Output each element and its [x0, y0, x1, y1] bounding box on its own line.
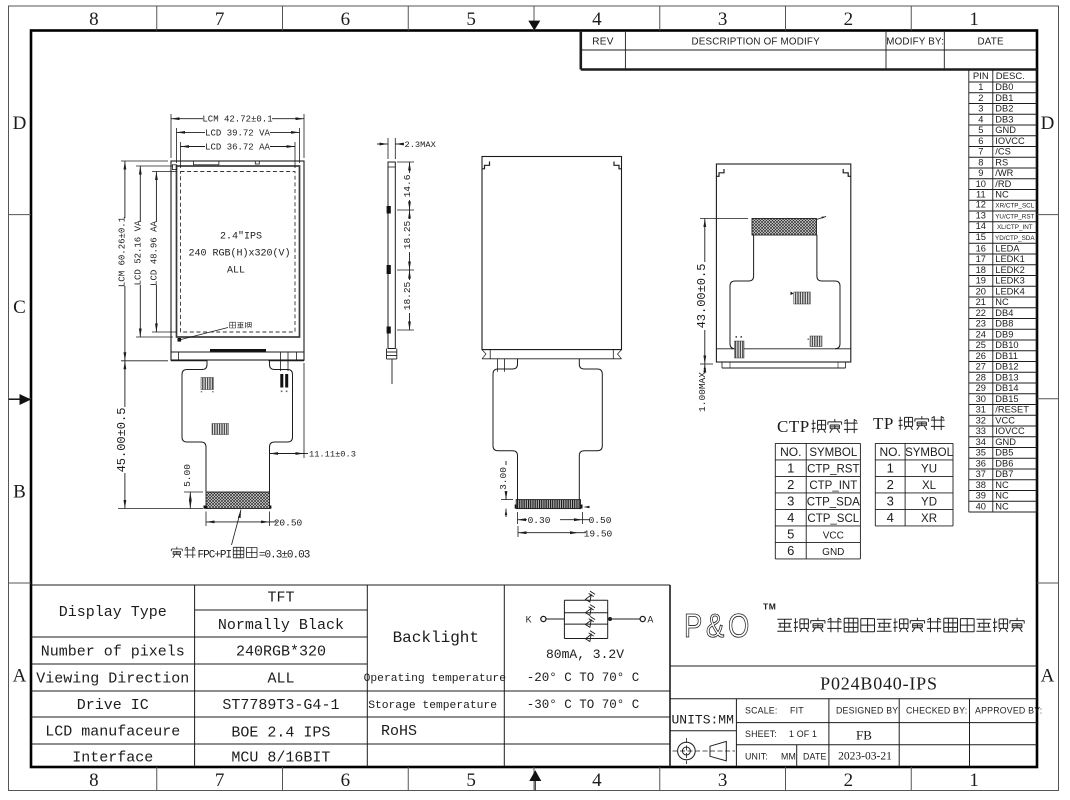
svg-text:1: 1 — [969, 9, 979, 30]
svg-text:GND: GND — [995, 437, 1016, 447]
svg-text:DB13: DB13 — [995, 372, 1018, 382]
svg-text:37: 37 — [976, 469, 986, 479]
svg-text:3.00: 3.00 — [498, 467, 509, 490]
svg-text:1: 1 — [887, 460, 894, 475]
svg-text:SYMBOL: SYMBOL — [809, 447, 858, 459]
svg-text:LCM 60.26±0.1: LCM 60.26±0.1 — [118, 217, 128, 287]
svg-text:DB6: DB6 — [995, 458, 1013, 468]
svg-text:240RGB*320: 240RGB*320 — [236, 644, 326, 661]
svg-text:A: A — [1041, 665, 1055, 686]
svg-text:5: 5 — [787, 526, 794, 541]
svg-text:RS: RS — [995, 157, 1008, 167]
svg-text:4: 4 — [887, 510, 894, 525]
svg-text:LCD 48.96 AA: LCD 48.96 AA — [149, 220, 159, 285]
svg-text:CTP_SDA: CTP_SDA — [807, 496, 860, 508]
svg-text:DB14: DB14 — [995, 383, 1018, 393]
svg-text:26: 26 — [976, 351, 986, 361]
svg-text:32: 32 — [976, 415, 986, 425]
svg-text:XR: XR — [921, 513, 937, 525]
svg-text:28: 28 — [976, 372, 986, 382]
svg-text:23: 23 — [976, 319, 986, 329]
svg-text:CTP_INT: CTP_INT — [809, 480, 857, 492]
svg-text:1: 1 — [969, 770, 979, 791]
svg-text:MODIFY BY:: MODIFY BY: — [886, 37, 944, 48]
svg-text:LEDK2: LEDK2 — [995, 265, 1024, 275]
svg-text:240 RGB(H)x320(V): 240 RGB(H)x320(V) — [188, 248, 290, 260]
svg-text:ALL: ALL — [227, 266, 245, 277]
svg-text:D: D — [13, 113, 27, 134]
svg-text:2: 2 — [844, 9, 854, 30]
svg-text:SHEET:: SHEET: — [745, 729, 777, 739]
svg-text:5: 5 — [978, 125, 983, 135]
svg-text:17: 17 — [976, 254, 986, 264]
svg-text:16: 16 — [976, 243, 986, 253]
svg-text:DB7: DB7 — [995, 469, 1013, 479]
svg-text:P&O: P&O — [684, 609, 753, 645]
svg-text:XL/CTP_INT: XL/CTP_INT — [997, 224, 1033, 231]
svg-text:9: 9 — [978, 168, 983, 178]
svg-text:45.00±0.5: 45.00±0.5 — [115, 408, 129, 473]
svg-text:DB15: DB15 — [995, 394, 1018, 404]
svg-text:MCU 8/16BIT: MCU 8/16BIT — [231, 750, 330, 767]
svg-text:A: A — [647, 615, 653, 625]
svg-text:PIN: PIN — [973, 71, 989, 82]
svg-text:APPROVED BY:: APPROVED BY: — [975, 706, 1042, 716]
svg-text:LEDK1: LEDK1 — [995, 254, 1024, 264]
svg-text:A: A — [13, 665, 27, 686]
svg-text:DESC.: DESC. — [996, 71, 1025, 82]
svg-text:DESIGNED BY:: DESIGNED BY: — [836, 706, 901, 716]
svg-text:7: 7 — [215, 9, 225, 30]
svg-text:2: 2 — [844, 770, 854, 791]
svg-text:YU: YU — [921, 463, 937, 475]
svg-text:3: 3 — [718, 770, 728, 791]
svg-text:0.50: 0.50 — [589, 515, 612, 526]
svg-text:/WR: /WR — [995, 168, 1013, 178]
svg-text:5: 5 — [466, 770, 476, 791]
svg-text:1: 1 — [978, 82, 983, 92]
svg-text:25: 25 — [976, 340, 986, 350]
svg-text:IOVCC: IOVCC — [995, 136, 1025, 146]
svg-text:40: 40 — [976, 501, 986, 511]
svg-text:DB5: DB5 — [995, 448, 1013, 458]
svg-text:LEDK3: LEDK3 — [995, 276, 1024, 286]
svg-text:4: 4 — [592, 9, 602, 30]
svg-text:NO.: NO. — [780, 445, 801, 459]
svg-text:RoHS: RoHS — [381, 723, 417, 740]
svg-text:GND: GND — [822, 547, 844, 558]
svg-text:TM: TM — [763, 602, 776, 612]
svg-text:19.50: 19.50 — [584, 528, 613, 539]
svg-text:NO.: NO. — [880, 445, 901, 459]
svg-text:4: 4 — [592, 770, 602, 791]
svg-text:IOVCC: IOVCC — [995, 426, 1025, 436]
svg-text:DESCRIPTION OF MODIFY: DESCRIPTION OF MODIFY — [692, 37, 821, 48]
svg-text:22: 22 — [976, 308, 986, 318]
svg-text:14: 14 — [976, 221, 986, 231]
svg-text:6: 6 — [341, 9, 351, 30]
svg-text:8: 8 — [89, 770, 99, 791]
svg-text:SCALE:: SCALE: — [745, 706, 778, 716]
svg-text:3: 3 — [887, 493, 894, 508]
svg-text:34: 34 — [976, 437, 986, 447]
svg-text:NC: NC — [995, 190, 1009, 200]
svg-text:YD/CTP_SDA: YD/CTP_SDA — [995, 235, 1035, 242]
svg-text:5.00: 5.00 — [182, 464, 193, 487]
svg-text:Number of pixels: Number of pixels — [41, 644, 185, 661]
svg-text:D: D — [1041, 113, 1055, 134]
svg-text:DB10: DB10 — [995, 340, 1018, 350]
svg-text:3: 3 — [787, 493, 794, 508]
svg-text:20: 20 — [976, 286, 986, 296]
svg-text:NC: NC — [995, 480, 1009, 490]
svg-text:19: 19 — [976, 276, 986, 286]
svg-text:Display Type: Display Type — [59, 604, 167, 621]
svg-text:DB12: DB12 — [995, 362, 1018, 372]
svg-text:6: 6 — [978, 136, 983, 146]
svg-text:CTP: CTP — [777, 417, 810, 436]
svg-text:DB4: DB4 — [995, 308, 1013, 318]
svg-text:YU/CTP_RST: YU/CTP_RST — [995, 213, 1034, 220]
svg-text:TP: TP — [873, 414, 894, 433]
svg-text:XR/CTP_SCL: XR/CTP_SCL — [995, 203, 1034, 210]
svg-text:18.25: 18.25 — [402, 281, 413, 310]
svg-text:DB0: DB0 — [995, 82, 1013, 92]
svg-text:/RESET: /RESET — [995, 405, 1029, 415]
svg-text:2023-03-21: 2023-03-21 — [838, 751, 892, 763]
svg-text:14.6: 14.6 — [402, 174, 413, 197]
svg-text:Drive IC: Drive IC — [77, 697, 149, 714]
svg-text:5: 5 — [466, 9, 476, 30]
svg-text:36: 36 — [976, 458, 986, 468]
svg-text:29: 29 — [976, 383, 986, 393]
svg-text:18: 18 — [976, 265, 986, 275]
svg-text:ALL: ALL — [267, 671, 294, 688]
svg-text:DB8: DB8 — [995, 319, 1013, 329]
svg-text:80mA, 3.2V: 80mA, 3.2V — [546, 647, 624, 662]
svg-text:LCD 52.16 VA: LCD 52.16 VA — [133, 220, 143, 285]
svg-text:NC: NC — [995, 297, 1009, 307]
svg-text:LCD manufaceure: LCD manufaceure — [45, 724, 180, 741]
svg-text:3: 3 — [718, 9, 728, 30]
svg-text:NC: NC — [995, 501, 1009, 511]
svg-text:0.30: 0.30 — [528, 515, 551, 526]
svg-text:C: C — [13, 297, 26, 318]
svg-text:2.4"IPS: 2.4"IPS — [220, 231, 262, 243]
svg-text:CHECKED BY:: CHECKED BY: — [906, 706, 967, 716]
svg-text:6: 6 — [341, 770, 351, 791]
svg-text:11: 11 — [976, 190, 986, 200]
svg-text:ST7789T3-G4-1: ST7789T3-G4-1 — [222, 697, 339, 714]
svg-text:3: 3 — [978, 104, 983, 114]
svg-text:UNITS:MM: UNITS:MM — [672, 713, 734, 728]
svg-text:LCM 42.72±0.1: LCM 42.72±0.1 — [202, 115, 272, 125]
svg-text:10: 10 — [976, 179, 986, 189]
svg-text:4: 4 — [787, 510, 794, 525]
svg-text:20.50: 20.50 — [274, 517, 303, 528]
svg-text:31: 31 — [976, 405, 986, 415]
svg-text:MM: MM — [781, 752, 796, 762]
svg-text:4: 4 — [978, 114, 983, 124]
svg-text:2: 2 — [787, 477, 794, 492]
svg-text:7: 7 — [215, 770, 225, 791]
svg-text:Storage temperature: Storage temperature — [368, 700, 497, 712]
svg-text:35: 35 — [976, 448, 986, 458]
svg-text:DB3: DB3 — [995, 114, 1013, 124]
svg-text:DATE: DATE — [803, 752, 827, 762]
svg-text:FB: FB — [856, 728, 872, 743]
svg-text:38: 38 — [976, 480, 986, 490]
svg-text:7: 7 — [978, 147, 983, 157]
svg-text:P024B040-IPS: P024B040-IPS — [820, 674, 938, 694]
svg-text:39: 39 — [976, 491, 986, 501]
svg-text:Interface: Interface — [72, 750, 153, 767]
svg-text:TFT: TFT — [267, 590, 294, 607]
svg-text:24: 24 — [976, 329, 986, 339]
svg-text:LCD 39.72 VA: LCD 39.72 VA — [205, 128, 270, 138]
svg-text:Viewing Direction: Viewing Direction — [36, 671, 189, 688]
svg-text:GND: GND — [995, 125, 1016, 135]
svg-text:-20° C TO 70° C: -20° C TO 70° C — [527, 671, 640, 685]
svg-text:-30° C TO 70° C: -30° C TO 70° C — [527, 698, 640, 712]
svg-text:13: 13 — [976, 210, 986, 220]
svg-text:/CS: /CS — [995, 147, 1011, 157]
svg-text:11.11±0.3: 11.11±0.3 — [309, 450, 356, 460]
svg-text:VCC: VCC — [823, 530, 844, 541]
svg-text:12: 12 — [976, 200, 986, 210]
svg-text:LCD 36.72 AA: LCD 36.72 AA — [205, 143, 270, 153]
svg-text:LEDK4: LEDK4 — [995, 286, 1024, 296]
svg-text:2.3MAX: 2.3MAX — [405, 140, 437, 150]
svg-text:8: 8 — [978, 157, 983, 167]
svg-text:XL: XL — [922, 480, 937, 492]
svg-text:NC: NC — [995, 491, 1009, 501]
svg-text:8: 8 — [89, 9, 99, 30]
svg-text:1: 1 — [787, 460, 794, 475]
svg-text:SYMBOL: SYMBOL — [905, 447, 954, 459]
svg-text:1.00MAX: 1.00MAX — [697, 372, 708, 412]
svg-text:CTP_SCL: CTP_SCL — [807, 513, 859, 525]
svg-text:30: 30 — [976, 394, 986, 404]
svg-text:21: 21 — [976, 297, 986, 307]
svg-text:2: 2 — [978, 93, 983, 103]
svg-text:6: 6 — [787, 543, 794, 558]
svg-text:Operating temperature: Operating temperature — [364, 673, 507, 685]
svg-text:43.00±0.5: 43.00±0.5 — [695, 264, 709, 329]
svg-text:FPC+PI: FPC+PI — [198, 550, 232, 562]
svg-text:CTP_RST: CTP_RST — [807, 463, 859, 475]
svg-text:=0.3±0.03: =0.3±0.03 — [259, 550, 310, 562]
svg-text:FIT: FIT — [790, 706, 804, 716]
svg-text:33: 33 — [976, 426, 986, 436]
svg-text:DB2: DB2 — [995, 104, 1013, 114]
svg-text:DB11: DB11 — [995, 351, 1018, 361]
svg-text:K: K — [526, 615, 532, 625]
svg-text:UNIT:: UNIT: — [745, 752, 768, 762]
svg-text:2: 2 — [887, 477, 894, 492]
svg-text:REV: REV — [592, 37, 613, 48]
svg-text:/RD: /RD — [995, 179, 1011, 189]
svg-text:DB9: DB9 — [995, 329, 1013, 339]
svg-text:27: 27 — [976, 362, 986, 372]
svg-text:YD: YD — [921, 496, 937, 508]
svg-text:LEDA: LEDA — [995, 243, 1020, 253]
svg-text:DB1: DB1 — [995, 93, 1013, 103]
svg-text:VCC: VCC — [995, 415, 1015, 425]
svg-text:BOE 2.4 IPS: BOE 2.4 IPS — [231, 725, 330, 742]
svg-text:1 OF 1: 1 OF 1 — [789, 729, 817, 739]
svg-text:18.25: 18.25 — [402, 220, 413, 249]
svg-text:DATE: DATE — [977, 37, 1003, 48]
svg-text:Backlight: Backlight — [393, 629, 479, 647]
svg-text:Normally Black: Normally Black — [218, 617, 344, 634]
svg-text:B: B — [13, 481, 26, 502]
svg-text:15: 15 — [976, 232, 986, 242]
